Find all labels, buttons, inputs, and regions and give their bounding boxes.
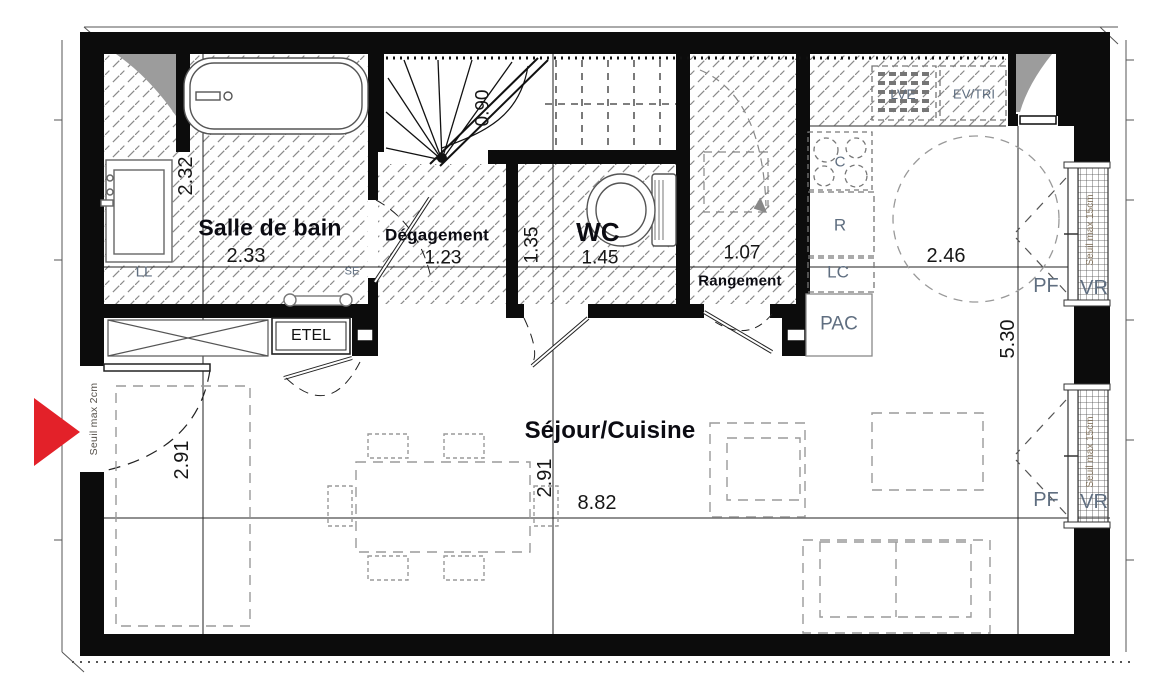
threshold-note-window-top: Seuil max 15cm	[1086, 194, 1096, 265]
threshold-note-window-bottom: Seuil max 15cm	[1086, 416, 1096, 487]
dim-bathroom-width: 2.33	[227, 246, 266, 266]
label-pf-bottom: PF	[1033, 490, 1059, 510]
wc-door	[524, 318, 588, 366]
dim-living-depth-left: 2.91	[172, 441, 192, 480]
label-dishwasher: LVE	[890, 87, 915, 101]
label-washing-machine: LL	[136, 265, 153, 280]
room-label-living: Séjour/Cuisine	[525, 419, 696, 443]
dining-table	[328, 434, 558, 580]
storage-door	[704, 312, 772, 352]
label-hob: C	[835, 155, 846, 170]
entrance-arrow-icon	[34, 398, 80, 466]
dim-kitchen-width: 2.46	[927, 246, 966, 266]
bathtub	[184, 58, 368, 134]
room-label-hallway: Dégagement	[385, 227, 489, 244]
closet-crossed	[108, 320, 268, 356]
sofa	[803, 540, 990, 633]
dim-wc-depth: 1.35	[523, 227, 542, 264]
label-sink-sorting: EV/TRI	[953, 88, 995, 101]
dim-bathroom-depth: 2.32	[176, 157, 196, 196]
label-heat-pump: PAC	[820, 315, 858, 334]
floor-plan-page: Salle de bain Dégagement WC Rangement Sé…	[0, 0, 1160, 694]
dim-living-depth-mid: 2.91	[535, 459, 555, 498]
towel-dryer	[284, 294, 352, 306]
upper-treads-dashed	[545, 60, 676, 148]
dim-storage-width: 1.07	[724, 244, 761, 263]
dim-wc-width: 1.45	[582, 249, 619, 268]
hallway-door	[284, 358, 360, 396]
label-etel: ETEL	[291, 328, 331, 344]
label-vr-bottom: VR	[1080, 492, 1108, 512]
dim-stair-width: 0.90	[474, 90, 493, 127]
threshold-note-entrance: Seuil max 2cm	[89, 383, 100, 456]
label-pf-top: PF	[1033, 276, 1059, 296]
side-table	[872, 413, 983, 490]
room-label-wc: WC	[576, 219, 620, 245]
label-towel-dryer: SE	[345, 267, 360, 278]
dim-hallway-width: 1.23	[425, 249, 462, 268]
dim-living-depth-right: 5.30	[998, 320, 1018, 359]
entrance-clearance	[116, 386, 250, 626]
label-vr-top: VR	[1080, 278, 1108, 298]
entrance-door	[104, 364, 210, 470]
floor-plan-drawing	[0, 0, 1160, 694]
room-label-bathroom: Salle de bain	[198, 217, 341, 240]
dim-living-width: 8.82	[578, 493, 617, 513]
room-label-storage: Rangement	[698, 274, 781, 289]
armchair	[710, 423, 805, 517]
label-fridge: R	[834, 217, 846, 234]
label-lc: LC	[827, 264, 849, 281]
washing-machine	[101, 160, 172, 262]
